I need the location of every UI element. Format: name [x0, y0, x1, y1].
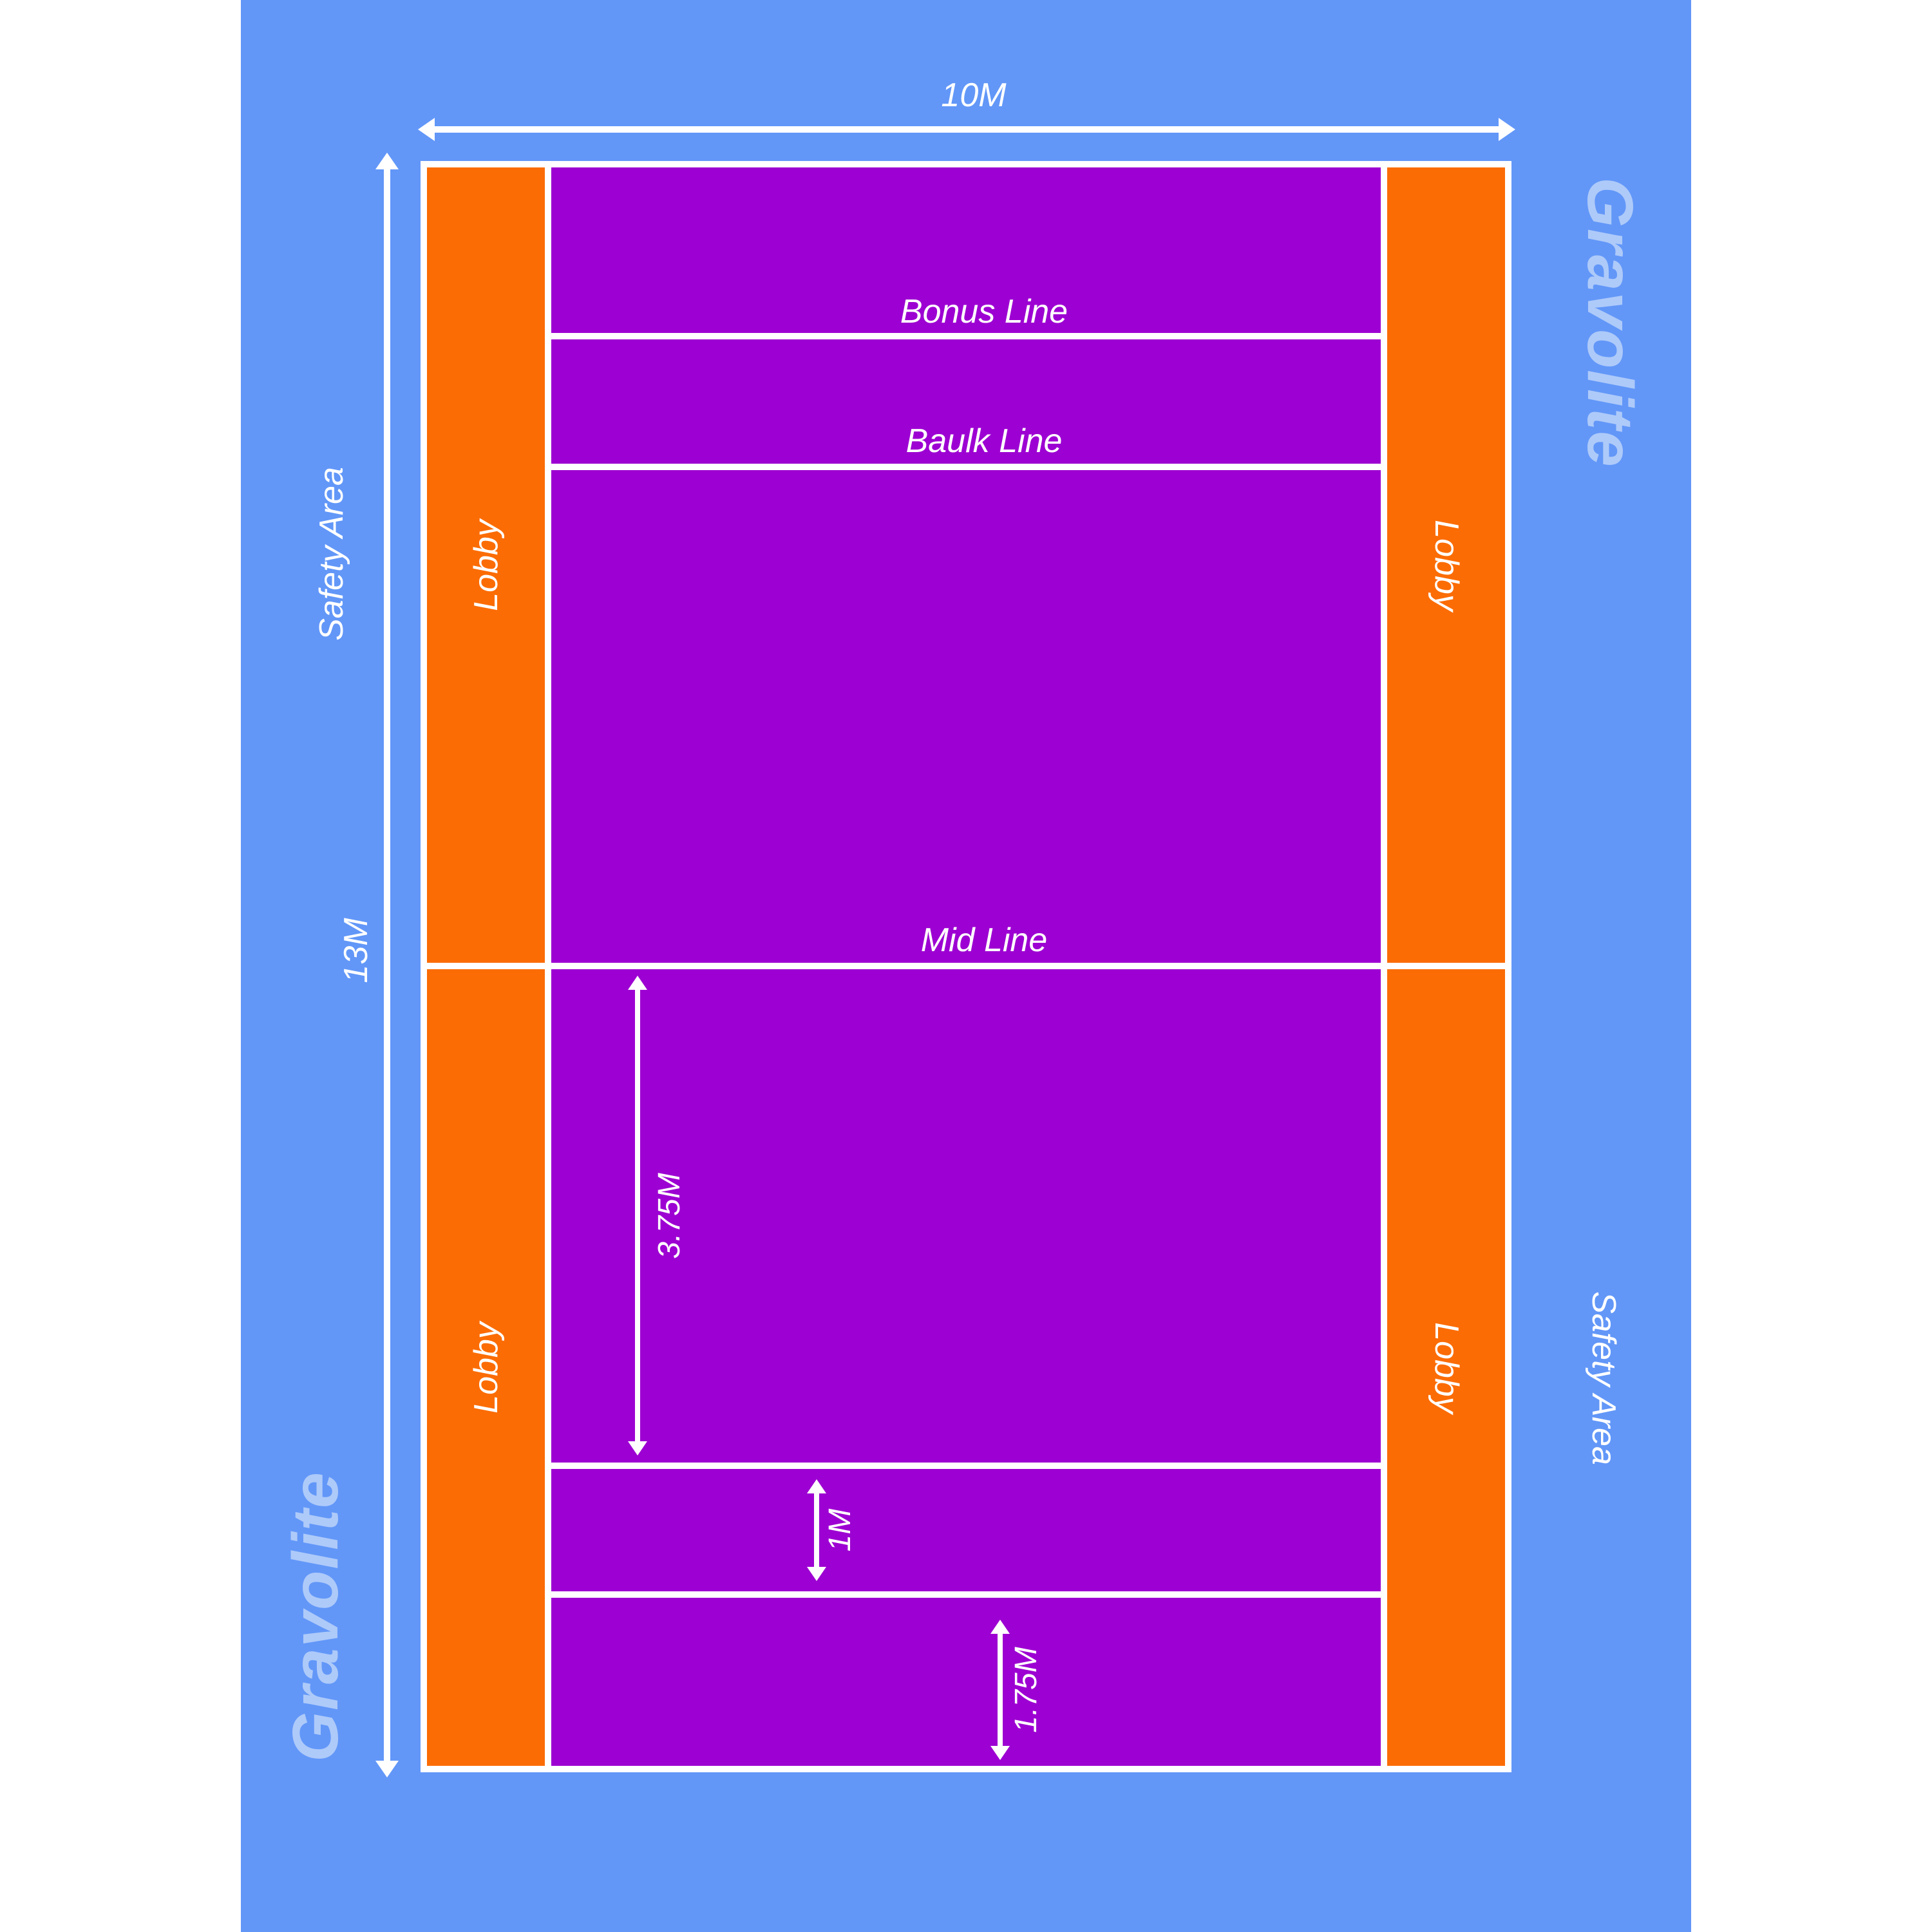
- safety-area-label-left: Safety Area: [315, 467, 348, 641]
- arrow-up-icon: [628, 976, 647, 990]
- right-lobby-top: Lobby: [1387, 167, 1505, 963]
- arrow-down-icon: [807, 1567, 826, 1581]
- bonus-to-end-arrow-shaft: [998, 1629, 1003, 1750]
- width-dimension-arrow: [418, 118, 1515, 141]
- safety-area-label-right: Safety Area: [1587, 1291, 1620, 1465]
- arrow-up-icon: [807, 1479, 826, 1493]
- bonus-line-top: [551, 333, 1381, 339]
- height-dimension-arrow: [375, 153, 399, 1777]
- mid-line: [427, 963, 1505, 969]
- brand-watermark-right: Gravolite: [1578, 177, 1642, 468]
- bonus-line-bottom: [551, 1591, 1381, 1598]
- mid-to-baulk-arrow-shaft: [635, 985, 640, 1446]
- arrow-down-icon: [628, 1441, 647, 1455]
- arrow-down-icon: [375, 1761, 399, 1777]
- width-arrow-shaft: [430, 126, 1504, 133]
- mid-to-baulk-arrow: [628, 976, 647, 1455]
- baulk-line-label: Baulk Line: [906, 424, 1063, 458]
- right-lobby-top-label: Lobby: [1430, 520, 1463, 611]
- right-lobby-bottom-label: Lobby: [1430, 1322, 1463, 1414]
- arrow-up-icon: [375, 153, 399, 169]
- baulk-line-top: [551, 464, 1381, 470]
- bonus-line-label: Bonus Line: [900, 295, 1068, 328]
- arrow-left-icon: [418, 118, 435, 141]
- height-dimension-label: 13M: [339, 918, 373, 983]
- left-lobby-top-label: Lobby: [469, 520, 503, 611]
- arrow-down-icon: [990, 1746, 1010, 1760]
- left-lobby-bottom: Lobby: [427, 969, 545, 1766]
- right-lobby-bottom: Lobby: [1387, 969, 1505, 1766]
- arrow-right-icon: [1499, 118, 1515, 141]
- baulk-line-bottom: [551, 1463, 1381, 1469]
- mid-line-label: Mid Line: [921, 923, 1048, 957]
- brand-watermark-left: Gravolite: [283, 1471, 348, 1762]
- baulk-to-bonus-label: 1M: [825, 1509, 856, 1552]
- left-lobby-bottom-label: Lobby: [469, 1322, 503, 1414]
- width-dimension-label: 10M: [941, 79, 1006, 112]
- bonus-to-end-label: 1.75M: [1011, 1647, 1042, 1732]
- baulk-to-bonus-arrow-shaft: [814, 1489, 819, 1571]
- left-lobby-top: Lobby: [427, 167, 545, 963]
- arrow-up-icon: [990, 1620, 1010, 1634]
- mid-to-baulk-label: 3.75M: [654, 1173, 685, 1258]
- bonus-to-end-arrow: [990, 1620, 1010, 1760]
- height-arrow-shaft: [384, 164, 390, 1766]
